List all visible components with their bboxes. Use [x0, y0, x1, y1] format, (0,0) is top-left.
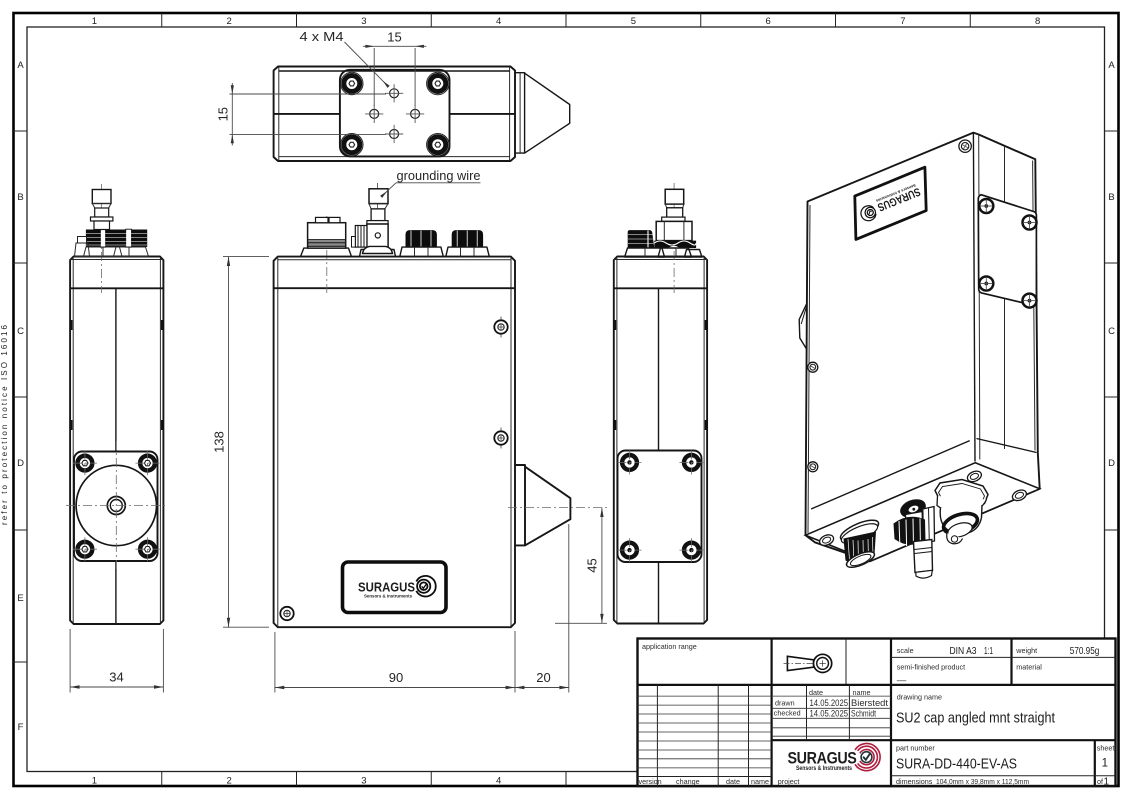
svg-text:20: 20: [536, 670, 550, 685]
svg-text:15: 15: [216, 107, 231, 121]
svg-text:7: 7: [900, 16, 905, 27]
svg-text:change: change: [676, 777, 700, 786]
svg-text:SU2 cap angled mnt straight: SU2 cap angled mnt straight: [896, 710, 1056, 727]
svg-text:B: B: [1108, 192, 1114, 203]
svg-text:3: 3: [361, 16, 366, 27]
svg-text:scale: scale: [897, 646, 914, 655]
svg-text:date: date: [726, 777, 740, 786]
svg-text:D: D: [17, 458, 24, 469]
svg-text:project: project: [778, 777, 800, 786]
svg-text:drawing name: drawing name: [897, 693, 942, 702]
svg-text:C: C: [17, 326, 24, 337]
svg-text:name: name: [853, 688, 871, 697]
svg-text:checked: checked: [774, 709, 801, 718]
svg-text:6: 6: [765, 16, 770, 27]
svg-text:570.95g: 570.95g: [1070, 645, 1100, 657]
svg-text:34: 34: [109, 670, 123, 685]
svg-text:1: 1: [92, 16, 97, 27]
svg-text:1: 1: [92, 776, 97, 787]
svg-text:drawn: drawn: [775, 698, 795, 707]
svg-text:90: 90: [389, 670, 403, 685]
svg-text:4 x M4: 4 x M4: [300, 29, 344, 44]
svg-text:sheet: sheet: [1097, 744, 1115, 753]
svg-text:138: 138: [212, 431, 227, 453]
svg-text:8: 8: [1035, 16, 1040, 27]
svg-text:part number: part number: [896, 744, 935, 753]
svg-text:material: material: [1016, 663, 1042, 672]
svg-text:104,0mm x 39,8mm x 112,5mm: 104,0mm x 39,8mm x 112,5mm: [936, 777, 1029, 786]
svg-text:date: date: [809, 688, 823, 697]
svg-text:F: F: [18, 722, 24, 733]
svg-text:SURAGUS: SURAGUS: [358, 580, 415, 595]
svg-text:15: 15: [387, 30, 401, 45]
svg-text:DIN A3: DIN A3: [950, 645, 977, 657]
svg-text:1: 1: [1103, 777, 1109, 788]
svg-text:1: 1: [1102, 758, 1108, 770]
svg-text:1:1: 1:1: [984, 645, 993, 657]
svg-text:A: A: [17, 60, 24, 71]
svg-text:B: B: [17, 192, 23, 203]
svg-text:—: —: [897, 675, 907, 686]
svg-text:4: 4: [496, 16, 501, 27]
svg-text:Sensors & Instruments: Sensors & Instruments: [796, 766, 853, 772]
svg-text:4: 4: [496, 776, 501, 787]
svg-text:A: A: [1108, 60, 1115, 71]
svg-text:of: of: [1097, 777, 1103, 786]
svg-text:name: name: [751, 777, 769, 786]
svg-text:14.05.2025: 14.05.2025: [810, 708, 849, 719]
svg-text:Schmidt: Schmidt: [851, 708, 876, 719]
svg-text:Sensors & Instruments: Sensors & Instruments: [364, 594, 413, 599]
svg-text:SURA-DD-440-EV-AS: SURA-DD-440-EV-AS: [896, 757, 1017, 773]
svg-text:application range: application range: [642, 642, 697, 651]
svg-text:2: 2: [226, 776, 231, 787]
svg-text:D: D: [1108, 458, 1115, 469]
svg-text:version: version: [639, 777, 662, 786]
svg-text:C: C: [1108, 326, 1115, 337]
svg-text:weight: weight: [1015, 646, 1037, 655]
svg-text:dimensions: dimensions: [896, 777, 933, 786]
svg-text:SURAGUS: SURAGUS: [788, 750, 857, 768]
svg-text:5: 5: [631, 16, 636, 27]
svg-text:45: 45: [585, 558, 600, 572]
svg-text:3: 3: [361, 776, 366, 787]
svg-text:grounding wire: grounding wire: [397, 168, 481, 183]
svg-text:2: 2: [226, 16, 231, 27]
svg-text:semi-finished product: semi-finished product: [897, 663, 965, 672]
svg-text:E: E: [17, 593, 23, 604]
